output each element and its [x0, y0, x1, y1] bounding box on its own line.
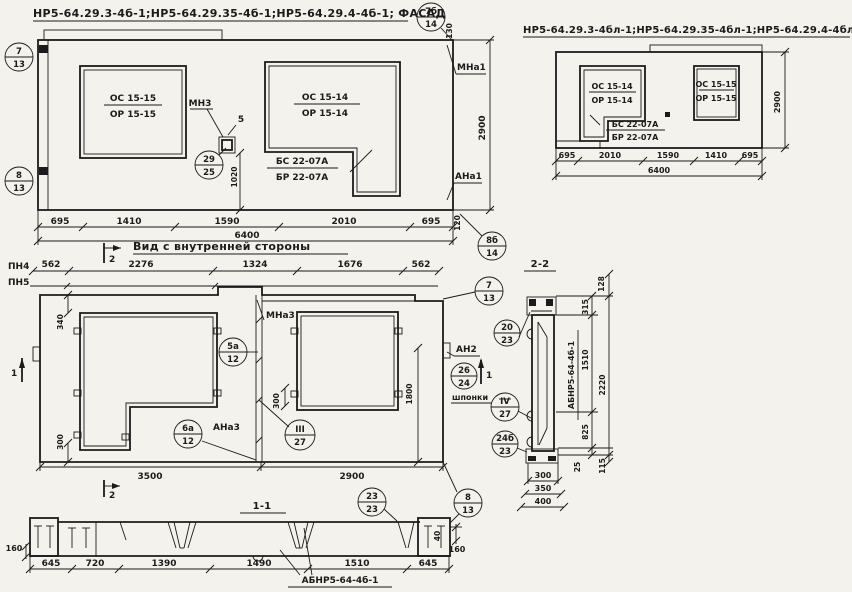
dim: 1510: [344, 559, 369, 569]
svg-text:14: 14: [425, 20, 437, 30]
dim: 315: [581, 299, 590, 315]
callout-iii-27: III 27: [259, 400, 315, 450]
svg-text:24: 24: [458, 379, 470, 389]
window-opening-left: ОС 15-15 ОР 15-15: [80, 66, 186, 158]
window-mark: ОР 15-15: [695, 94, 736, 103]
svg-text:8б: 8б: [486, 235, 498, 246]
dim: 1590: [214, 217, 239, 227]
window-mark: ОС 15-14: [302, 93, 348, 103]
embed-marker: [665, 112, 670, 117]
section-2-body: [526, 297, 558, 463]
section-mark-2-top: 2: [104, 243, 121, 265]
anchor-label-mna3: МНа3: [266, 311, 295, 321]
window-opening-left: ОС 15-14 ОР 15-14 БС 22-07А БР 22-07А: [580, 66, 665, 142]
keyway-label: шпонки: [452, 393, 488, 402]
dim: 1590: [657, 151, 680, 160]
dim: 695: [742, 151, 759, 160]
embed-mn3: МН3 5: [189, 99, 245, 153]
facade-right-dim-chain: 695 2010 1590 1410 695 6400: [552, 148, 766, 180]
svg-text:IV: IV: [500, 397, 510, 407]
dim-340: 340: [56, 314, 65, 330]
section-mark-1-right: 1: [478, 358, 492, 384]
dim-2900: 2900: [478, 115, 488, 140]
svg-text:27: 27: [294, 438, 306, 448]
svg-text:27: 27: [499, 410, 511, 420]
dim: 1410: [116, 217, 141, 227]
svg-text:12: 12: [182, 437, 194, 447]
inner-view: Вид с внутренней стороны 2 ПН4 ПН5 562 2…: [8, 240, 503, 482]
svg-text:7: 7: [16, 47, 22, 57]
svg-text:7: 7: [486, 281, 492, 291]
dim: 645: [42, 559, 61, 569]
dim: 1510: [581, 350, 590, 371]
dim-120: 120: [453, 215, 462, 231]
dim: 2010: [331, 217, 356, 227]
svg-text:29: 29: [203, 155, 215, 165]
callout-iv-27: IV 27: [491, 393, 531, 421]
svg-text:13: 13: [13, 184, 25, 194]
dim: 720: [86, 559, 105, 569]
svg-text:24б: 24б: [496, 433, 514, 444]
callout-8-13: 8 13: [5, 167, 33, 195]
callout-6a-12: 6а 12: [174, 420, 202, 448]
svg-text:20: 20: [501, 323, 513, 333]
window-mark: ОР 15-14: [302, 109, 348, 119]
svg-text:8: 8: [16, 171, 22, 181]
svg-text:13: 13: [13, 60, 25, 70]
callout-7-13-inner: 7 13: [443, 277, 503, 305]
section-1-dim-chain: 645 720 1390 1490 1510 645: [26, 556, 453, 573]
dim-160-left: 160: [6, 544, 23, 553]
inner-window-right: [291, 312, 402, 410]
section-1-slab: [30, 518, 450, 561]
dim-3500: 3500: [137, 472, 162, 482]
dim: 1390: [151, 559, 176, 569]
svg-text:2: 2: [109, 255, 115, 265]
window-opening-middle: ОС 15-14 ОР 15-14 БС 22-07А БР 22-07А: [265, 62, 400, 196]
svg-text:7б: 7б: [425, 6, 437, 17]
window-opening-right: ОС 15-15 ОР 15-15: [694, 66, 739, 120]
dim: 25: [573, 462, 582, 472]
dim: 1490: [246, 559, 271, 569]
sill-mark: БР 22-07А: [612, 133, 659, 142]
inner-view-title: Вид с внутренней стороны: [133, 240, 310, 253]
dim: 2220: [598, 375, 607, 396]
callout-7-13: 7 13: [5, 43, 33, 71]
callout-5a-12: 5а 12: [219, 338, 258, 366]
window-mark: ОР 15-14: [591, 96, 632, 105]
svg-text:14: 14: [486, 249, 498, 259]
window-mark: ОС 15-15: [695, 80, 736, 89]
sill-mark: БС 22-07А: [276, 157, 328, 167]
dim-1020: 1020: [230, 167, 239, 188]
inner-window-left: [74, 313, 221, 450]
svg-text:13: 13: [462, 506, 474, 516]
svg-text:23: 23: [366, 492, 378, 502]
dim: 350: [535, 484, 552, 493]
panel-mark-label: АБНР5-64-4б-1: [302, 575, 379, 586]
callout-23-23: 23 23: [358, 488, 397, 521]
svg-text:23: 23: [366, 505, 378, 515]
facade-left-title: НР5-64.29.3-4б-1;НР5-64.29.35-4б-1;НР5-6…: [33, 7, 446, 20]
svg-text:2: 2: [109, 491, 115, 501]
dim: 2276: [128, 260, 153, 270]
callout-20-23: 20 23: [494, 312, 530, 346]
dim-2900: 2900: [339, 472, 364, 482]
svg-text:III: III: [295, 425, 305, 435]
embed-label: МН3: [189, 99, 212, 109]
axis-label-pn5: ПН5: [8, 278, 29, 288]
anchor-label-ana1: АНа1: [455, 172, 482, 182]
section-mark-2-bottom: 2: [104, 480, 120, 501]
svg-text:23: 23: [499, 447, 511, 457]
anchor-label-mna1: МНа1: [457, 63, 486, 73]
dim-300: 300: [56, 434, 65, 450]
dim: 1324: [242, 260, 267, 270]
svg-text:5а: 5а: [227, 342, 239, 352]
parapet-band: [650, 45, 762, 52]
section-2-2-view: 2-2 АБНР5-64-4б-1 128 315 1510 2220 825: [491, 259, 613, 511]
panel-mark-label: АБНР5-64-4б-1: [566, 340, 576, 409]
dim-40: 40: [433, 531, 442, 541]
dim: 115: [598, 458, 607, 474]
sill-mark: БР 22-07А: [276, 173, 328, 183]
dim: 2010: [599, 151, 622, 160]
facade-right-view: НР5-64.29.3-4бл-1;НР5-64.29.35-4бл-1;НР5…: [523, 24, 852, 180]
drawing-canvas: НР5-64.29.3-4б-1;НР5-64.29.35-4б-1;НР5-6…: [0, 0, 852, 592]
window-mark: ОС 15-14: [591, 82, 632, 91]
svg-text:8: 8: [465, 493, 471, 503]
svg-text:1: 1: [486, 371, 492, 381]
callout-26-24: 26 24: [451, 363, 477, 389]
callout-8-13-bottom: 8 13: [443, 462, 482, 523]
dim-total: 6400: [648, 166, 671, 175]
dim: 645: [419, 559, 438, 569]
dim-130: 130: [445, 23, 454, 39]
svg-text:6а: 6а: [182, 424, 194, 434]
dim: 1410: [705, 151, 728, 160]
callout-29-25: 29 25: [195, 148, 226, 179]
dim: 695: [559, 151, 576, 160]
svg-text:25: 25: [203, 168, 215, 178]
facade-right-title: НР5-64.29.3-4бл-1;НР5-64.29.35-4бл-1;НР5…: [523, 24, 852, 36]
window-mark: ОР 15-15: [110, 110, 156, 120]
callout-24b-23: 24б 23: [492, 431, 527, 457]
svg-text:26: 26: [458, 366, 470, 376]
dim-160-right: 160: [449, 545, 466, 554]
dim: 300: [535, 471, 552, 480]
dim: 825: [581, 424, 590, 440]
svg-text:13: 13: [483, 294, 495, 304]
dim: 695: [51, 217, 70, 227]
dim: 695: [422, 217, 441, 227]
dim: 562: [412, 260, 431, 270]
blueprint-page: НР5-64.29.3-4б-1;НР5-64.29.35-4б-1;НР5-6…: [0, 0, 852, 592]
svg-text:12: 12: [227, 355, 239, 365]
anchor-label-an2: АН2: [456, 345, 477, 355]
section-mark-1-left: 1: [11, 358, 25, 382]
section-1-1-view: 2 1-1 160 40 160 645: [6, 462, 482, 587]
callout-8b-14: 8б 14: [460, 214, 506, 260]
dim: 128: [597, 276, 606, 292]
section-2-title: 2-2: [531, 259, 550, 270]
dim-1800: 1800: [405, 384, 414, 405]
anchor-label-ana3: АНа3: [213, 423, 240, 433]
dim: 562: [42, 260, 61, 270]
parapet-band: [44, 30, 222, 40]
facade-left-view: НР5-64.29.3-4б-1;НР5-64.29.35-4б-1;НР5-6…: [5, 3, 506, 260]
sill-mark: БС 22-07А: [612, 120, 659, 129]
svg-text:23: 23: [501, 336, 513, 346]
inner-bottom-dim-chain: 3500 2900: [36, 462, 447, 482]
dim-300: 300: [272, 393, 281, 409]
dim: 400: [535, 497, 552, 506]
detail-number: 5: [238, 115, 244, 125]
dim: 1676: [337, 260, 362, 270]
axis-label-pn4: ПН4: [8, 262, 29, 272]
inner-top-dim-chain: 562 2276 1324 1676 562: [29, 260, 443, 275]
svg-text:1: 1: [11, 369, 17, 379]
section-1-title: 1-1: [253, 501, 272, 512]
dim-height: 2900: [773, 90, 782, 113]
window-mark: ОС 15-15: [110, 94, 156, 104]
